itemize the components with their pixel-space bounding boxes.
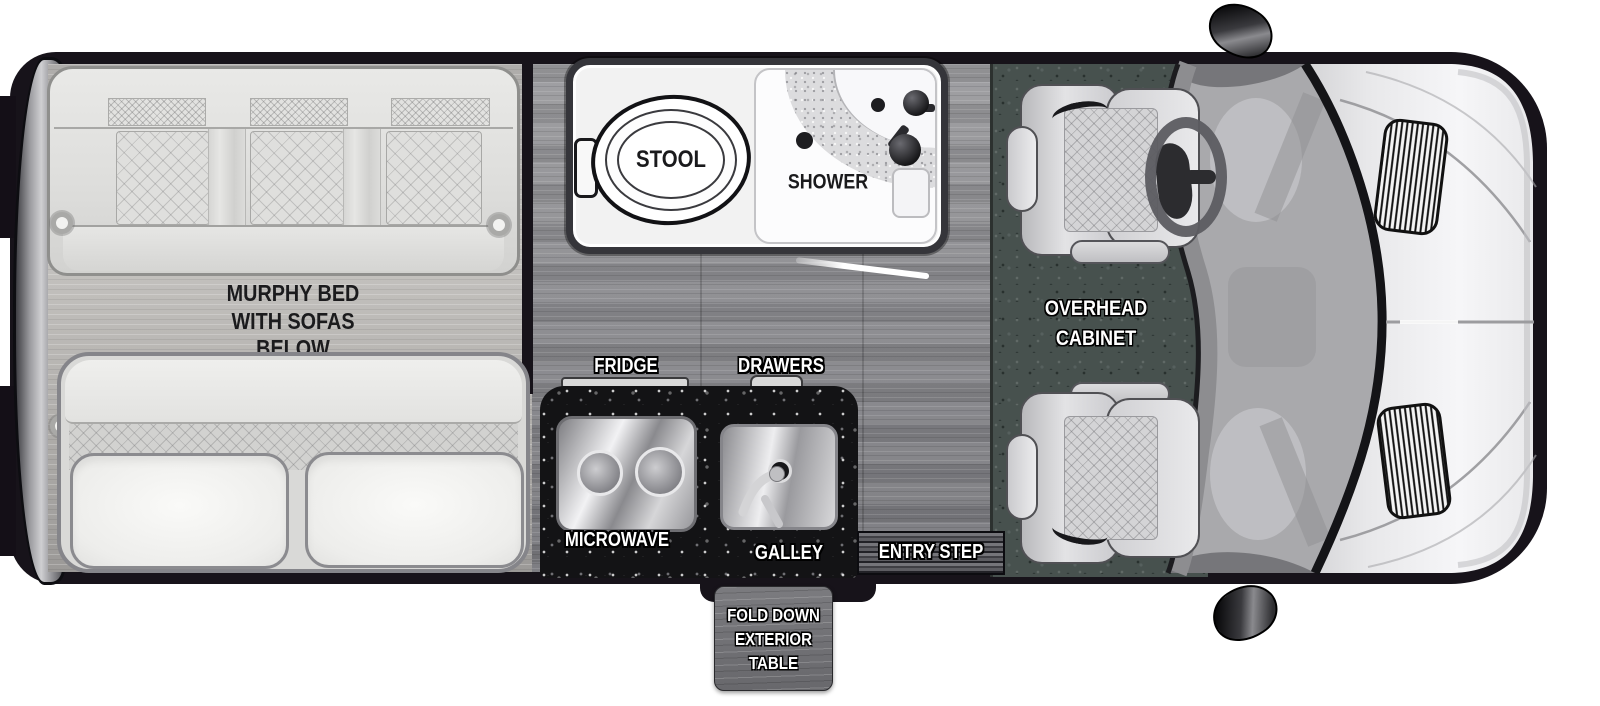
overhead-line2: CABINET	[1001, 324, 1190, 354]
overhead-line1: OVERHEAD	[1001, 294, 1190, 324]
shower-label: SHOWER	[788, 172, 868, 193]
sofa-seat-edge	[63, 225, 504, 271]
soap-dish	[892, 168, 930, 218]
sofa-back-cushion	[250, 131, 345, 225]
microwave-unit	[556, 416, 697, 532]
fridge-label: FRIDGE	[594, 356, 657, 376]
floorplan-canvas: FOLD DOWN EXTERIOR TABLE	[0, 0, 1600, 706]
anchor-ring	[488, 214, 510, 236]
fold-table-line2: EXTERIOR	[723, 627, 824, 651]
murphy-line2: WITH SOFAS	[190, 308, 396, 336]
anchor-ring	[51, 212, 73, 234]
fold-table-line1: FOLD DOWN	[723, 603, 824, 627]
sofa-divider	[343, 129, 381, 225]
sofa-back-cushion	[386, 131, 482, 225]
shower-drain	[796, 132, 813, 149]
headrest-mesh	[108, 98, 206, 126]
seat-armrest	[1070, 240, 1170, 264]
pillow-left	[70, 453, 289, 569]
partition-wall	[522, 64, 533, 394]
headrest-mesh	[250, 98, 348, 126]
hood-vent-grille-bottom	[1377, 403, 1452, 520]
passenger-seat	[1006, 380, 1202, 566]
drawers-label: DRAWERS	[738, 356, 824, 376]
hood-vent-grille-top	[1374, 119, 1449, 236]
fold-down-exterior-table: FOLD DOWN EXTERIOR TABLE	[714, 586, 833, 691]
sink-faucet	[725, 450, 815, 540]
headrest-mesh	[391, 98, 490, 126]
shower-knob-upper	[903, 90, 929, 116]
sofa-back-cushion	[116, 131, 210, 225]
floor-plank-seam	[700, 254, 702, 386]
shower-knob-lower	[889, 134, 921, 166]
seat-quilt	[1064, 108, 1158, 232]
overhead-cabinet-label: OVERHEAD CABINET	[1001, 294, 1190, 354]
steering-wheel	[1145, 117, 1227, 237]
microwave-label: MICROWAVE	[565, 530, 669, 550]
sofa-bottom-bed	[57, 352, 530, 573]
seat-headrest	[1006, 126, 1038, 212]
pillow-right	[305, 452, 524, 568]
bed-platform	[65, 360, 522, 424]
shower-pan	[754, 68, 937, 244]
entry-step-label: ENTRY STEP	[879, 542, 984, 562]
fold-table-label: FOLD DOWN EXTERIOR TABLE	[723, 603, 824, 675]
burner-left	[577, 450, 623, 496]
fold-table-line3: TABLE	[723, 651, 824, 675]
sofa-rail	[54, 127, 513, 129]
burner-right	[635, 447, 685, 497]
shower-head-mount	[871, 98, 885, 112]
rear-bumper-tab-top	[0, 96, 16, 238]
murphy-bed-label: MURPHY BED WITH SOFAS BELOW	[190, 280, 396, 363]
murphy-line1: MURPHY BED	[190, 280, 396, 308]
galley-label: GALLEY	[755, 543, 823, 563]
sofa-divider	[208, 129, 246, 225]
sofa-top	[47, 66, 520, 276]
dash-console	[1228, 267, 1316, 367]
seat-headrest	[1006, 434, 1038, 520]
stool-label: STOOL	[636, 148, 706, 172]
